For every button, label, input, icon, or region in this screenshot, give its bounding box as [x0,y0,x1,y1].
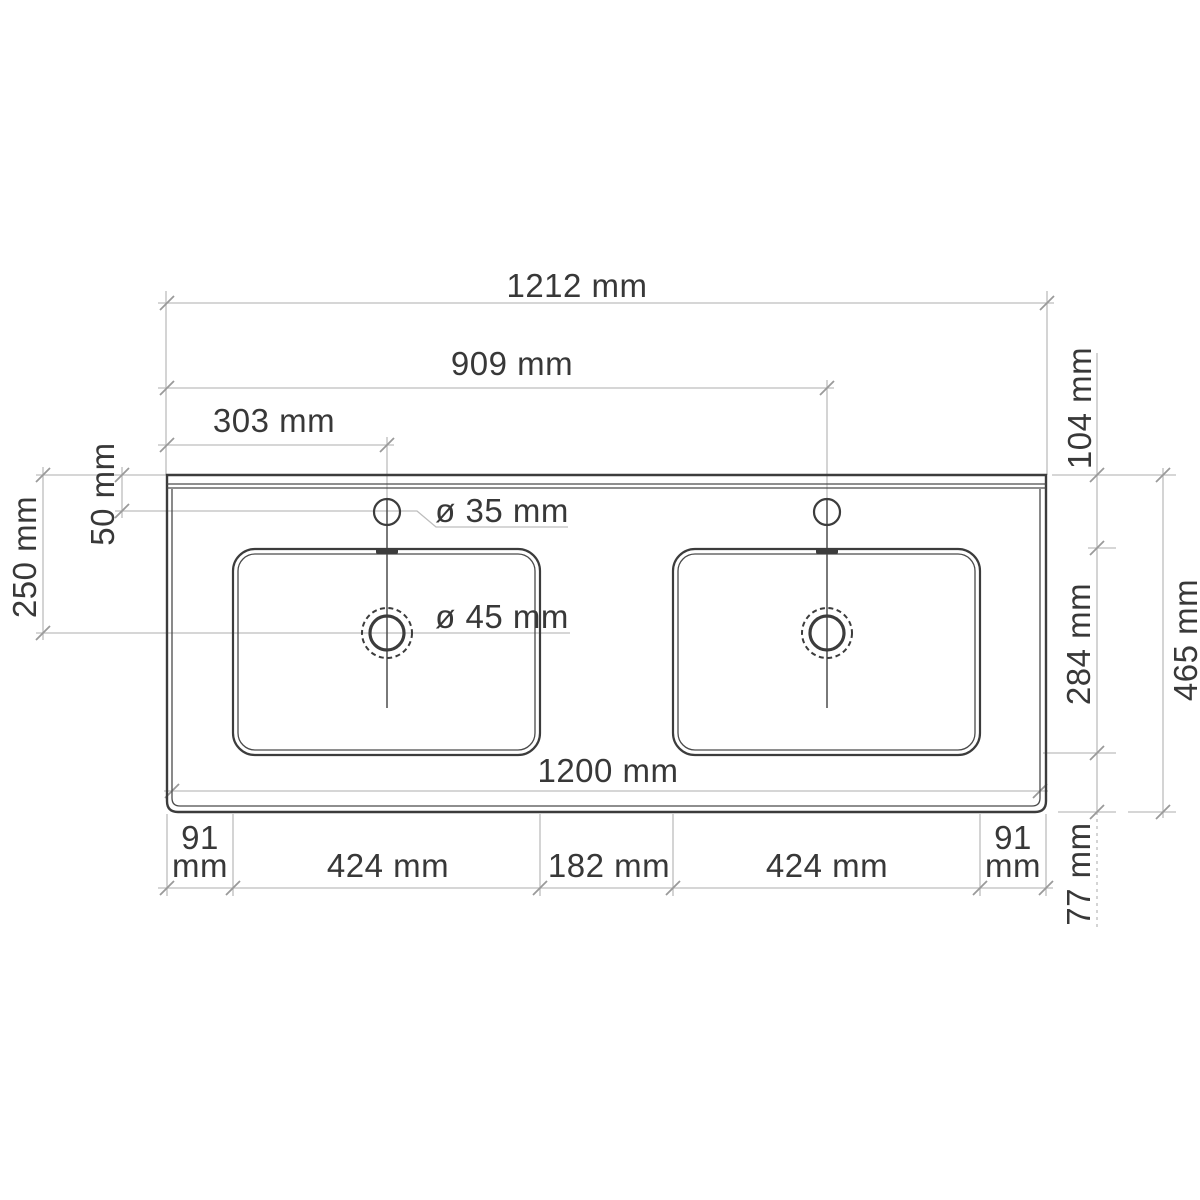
dim-right-margin-unit: mm [985,847,1041,884]
dim-drain-hole-diameter: ø 45 mm [435,598,569,635]
left-overflow-notch [376,548,398,554]
dim-inner-width: 1200 mm [537,752,678,789]
right-overflow-notch [816,548,838,554]
dim-basin-gap: 182 mm [548,847,670,884]
extension-lines [36,291,1176,896]
dim-overall-depth: 465 mm [1167,579,1200,701]
dim-left-to-left-faucet: 303 mm [213,402,335,439]
dimension-labels: 1212 mm 909 mm 303 mm ø 35 mm ø 45 mm 50… [6,267,1200,926]
drawing-canvas: 1212 mm 909 mm 303 mm ø 35 mm ø 45 mm 50… [0,0,1200,1200]
washbasin-technical-drawing: 1212 mm 909 mm 303 mm ø 35 mm ø 45 mm 50… [0,0,1200,1200]
dim-back-to-basin: 104 mm [1061,347,1098,469]
dim-back-to-drain: 250 mm [6,496,43,618]
dim-basin-to-front: 77 mm [1060,822,1097,925]
dim-left-to-right-faucet: 909 mm [451,345,573,382]
dim-left-margin-unit: mm [172,847,228,884]
dim-right-basin-width: 424 mm [766,847,888,884]
dim-left-basin-width: 424 mm [327,847,449,884]
dim-overall-width: 1212 mm [506,267,647,304]
dim-back-to-faucet: 50 mm [84,442,121,545]
dimension-ticks [36,296,1170,895]
dim-faucet-hole-diameter: ø 35 mm [435,492,569,529]
dim-basin-depth: 284 mm [1060,583,1097,705]
